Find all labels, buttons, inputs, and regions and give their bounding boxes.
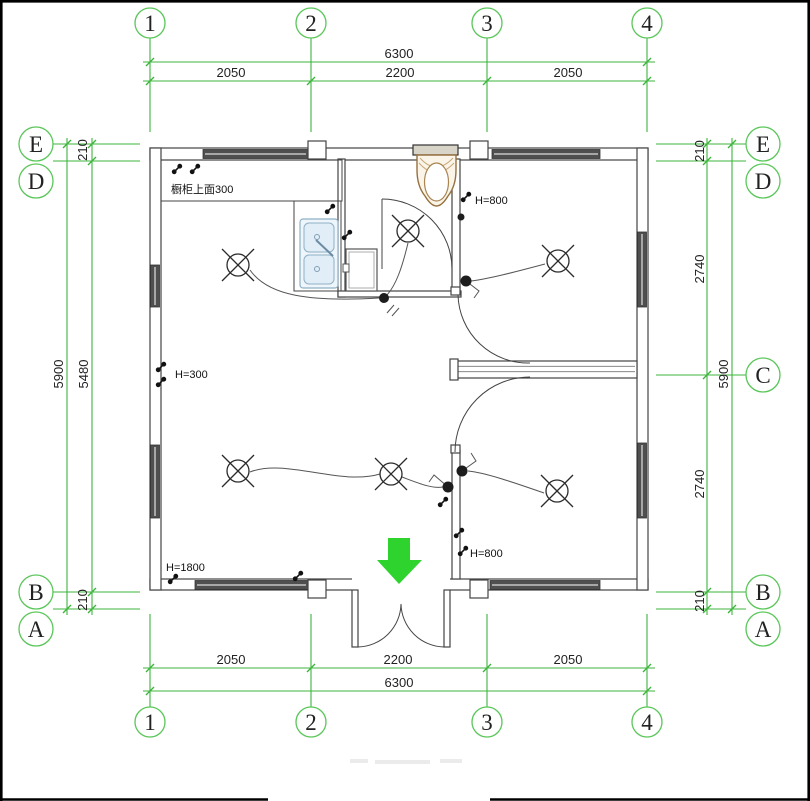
window-segment [638,443,647,518]
dim-left-gap-bottom: 210 [75,589,90,611]
junction-box-icon [457,466,468,477]
ceiling-lamp-icon [392,215,424,247]
grid-bubble-label: 2 [305,710,317,735]
wall-right [637,148,648,590]
dim-top-seg: 2050 [217,65,246,80]
grid-bubble-label: B [755,580,770,605]
toilet [413,145,458,206]
junction-box-icon [379,293,389,303]
grid-bubble-label: B [28,580,43,605]
dim-right-upper: 2740 [692,255,707,284]
junction-box-icon [443,482,454,493]
window-segment [638,232,647,307]
ceiling-lamp-icon [542,245,574,277]
ceiling-lamp-icon [375,458,407,490]
grid-bubbles-left: E D B A [19,127,53,646]
ceiling-lamp-icon [541,475,573,507]
grid-bubble-label: E [29,132,43,157]
window-segment [490,581,600,590]
dim-left-overall: 5900 [51,360,66,389]
dim-bottom-seg: 2050 [217,652,246,667]
junction-box-icon [461,276,472,287]
grid-bubble-label: E [756,132,770,157]
switch-height-hall: H=800 [470,548,503,560]
entrance-double-door [352,590,450,647]
pier [308,141,326,159]
dim-right-gap-top: 210 [692,140,707,162]
dim-left-gap-top: 210 [75,139,90,161]
grid-bubbles-bottom: 1 2 3 4 [135,707,662,737]
grid-bubble-label: A [28,617,45,642]
dim-right-gap-bottom: 210 [692,590,707,612]
ceiling-lamp-icon [222,249,254,281]
window-segment [195,581,308,590]
bathroom-door [382,199,452,269]
grid-bubble-label: 2 [305,11,317,36]
window-segment [492,150,600,159]
grid-bubble-label: 4 [641,710,653,735]
grid-bubble-label: A [755,617,772,642]
switch-icon [325,204,335,214]
pier [470,141,488,159]
switch-icon [190,164,200,174]
grid-bubble-label: 1 [144,11,156,36]
grid-bubble-label: 4 [641,11,653,36]
window-segment [203,150,308,159]
bedroom-bottom-door [455,377,530,452]
dim-top-seg: 2200 [386,65,415,80]
dim-bottom-seg: 2200 [384,652,413,667]
bedroom-top-door [458,295,530,363]
faint-watermark [350,761,462,762]
switch-icon [172,164,182,174]
switch-icon [438,497,448,507]
ceiling-lamp-icon [222,455,254,487]
switch-height-entry: H=1800 [166,562,205,574]
grid-bubble-label: 3 [481,710,493,735]
washing-machine [343,249,377,291]
door-jamb [451,287,460,295]
grid-bubbles-top: 1 2 3 4 [135,8,662,38]
grid-bubble-label: 1 [144,710,156,735]
pier [308,580,326,598]
dim-bottom-overall: 6300 [385,675,414,690]
wall-middle [455,361,637,378]
dimension-grid: 1 2 3 4 1 2 3 4 E D B A E D C B A 6300 [19,8,780,737]
junction-box-icon [458,214,465,221]
grid-bubble-label: 3 [481,11,493,36]
wall-bath-bottom [338,291,461,297]
switch-height-left: H=300 [175,369,208,381]
grid-bubble-label: D [755,169,772,194]
switch-height-bath: H=800 [475,195,508,207]
window-segment [151,265,160,307]
kitchen-sink [300,219,338,288]
floor-plan-canvas: 1 2 3 4 1 2 3 4 E D B A E D C B A 6300 [0,0,810,801]
dim-bottom-seg: 2050 [554,652,583,667]
walls [150,148,648,592]
dim-top-overall: 6300 [385,46,414,61]
grid-bubbles-right: E D C B A [746,127,780,646]
cabinet-note: 橱柜上面300 [171,182,233,196]
dim-right-lower: 2740 [692,470,707,499]
grid-bubble-label: C [755,363,770,388]
grid-bubble-label: D [28,169,45,194]
dim-right-overall: 5900 [716,360,731,389]
dim-top-seg: 2050 [554,65,583,80]
wall-middle-end-cap [450,359,458,380]
switch-icon [461,192,471,202]
pier [470,580,488,598]
window-segment [151,445,160,518]
dim-left-inner: 5480 [76,360,91,389]
